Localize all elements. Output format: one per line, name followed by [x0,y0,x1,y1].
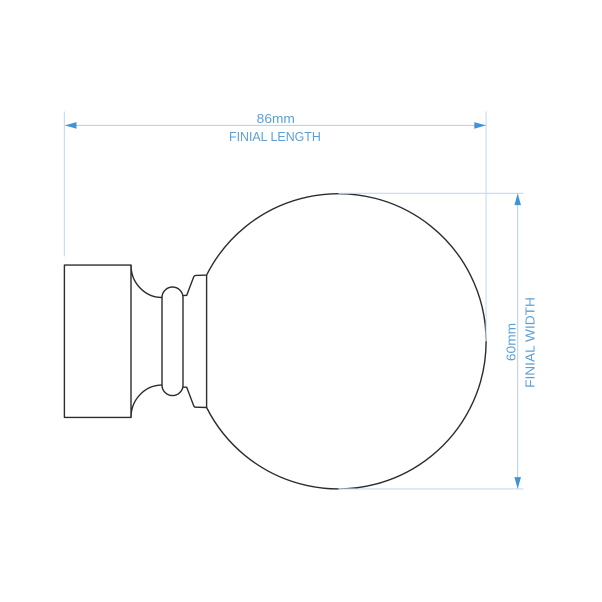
svg-text:FINIAL WIDTH: FINIAL WIDTH [522,297,537,388]
svg-text:60mm: 60mm [503,323,518,361]
svg-text:86mm: 86mm [257,111,295,126]
svg-text:FINIAL LENGTH: FINIAL LENGTH [229,129,321,144]
